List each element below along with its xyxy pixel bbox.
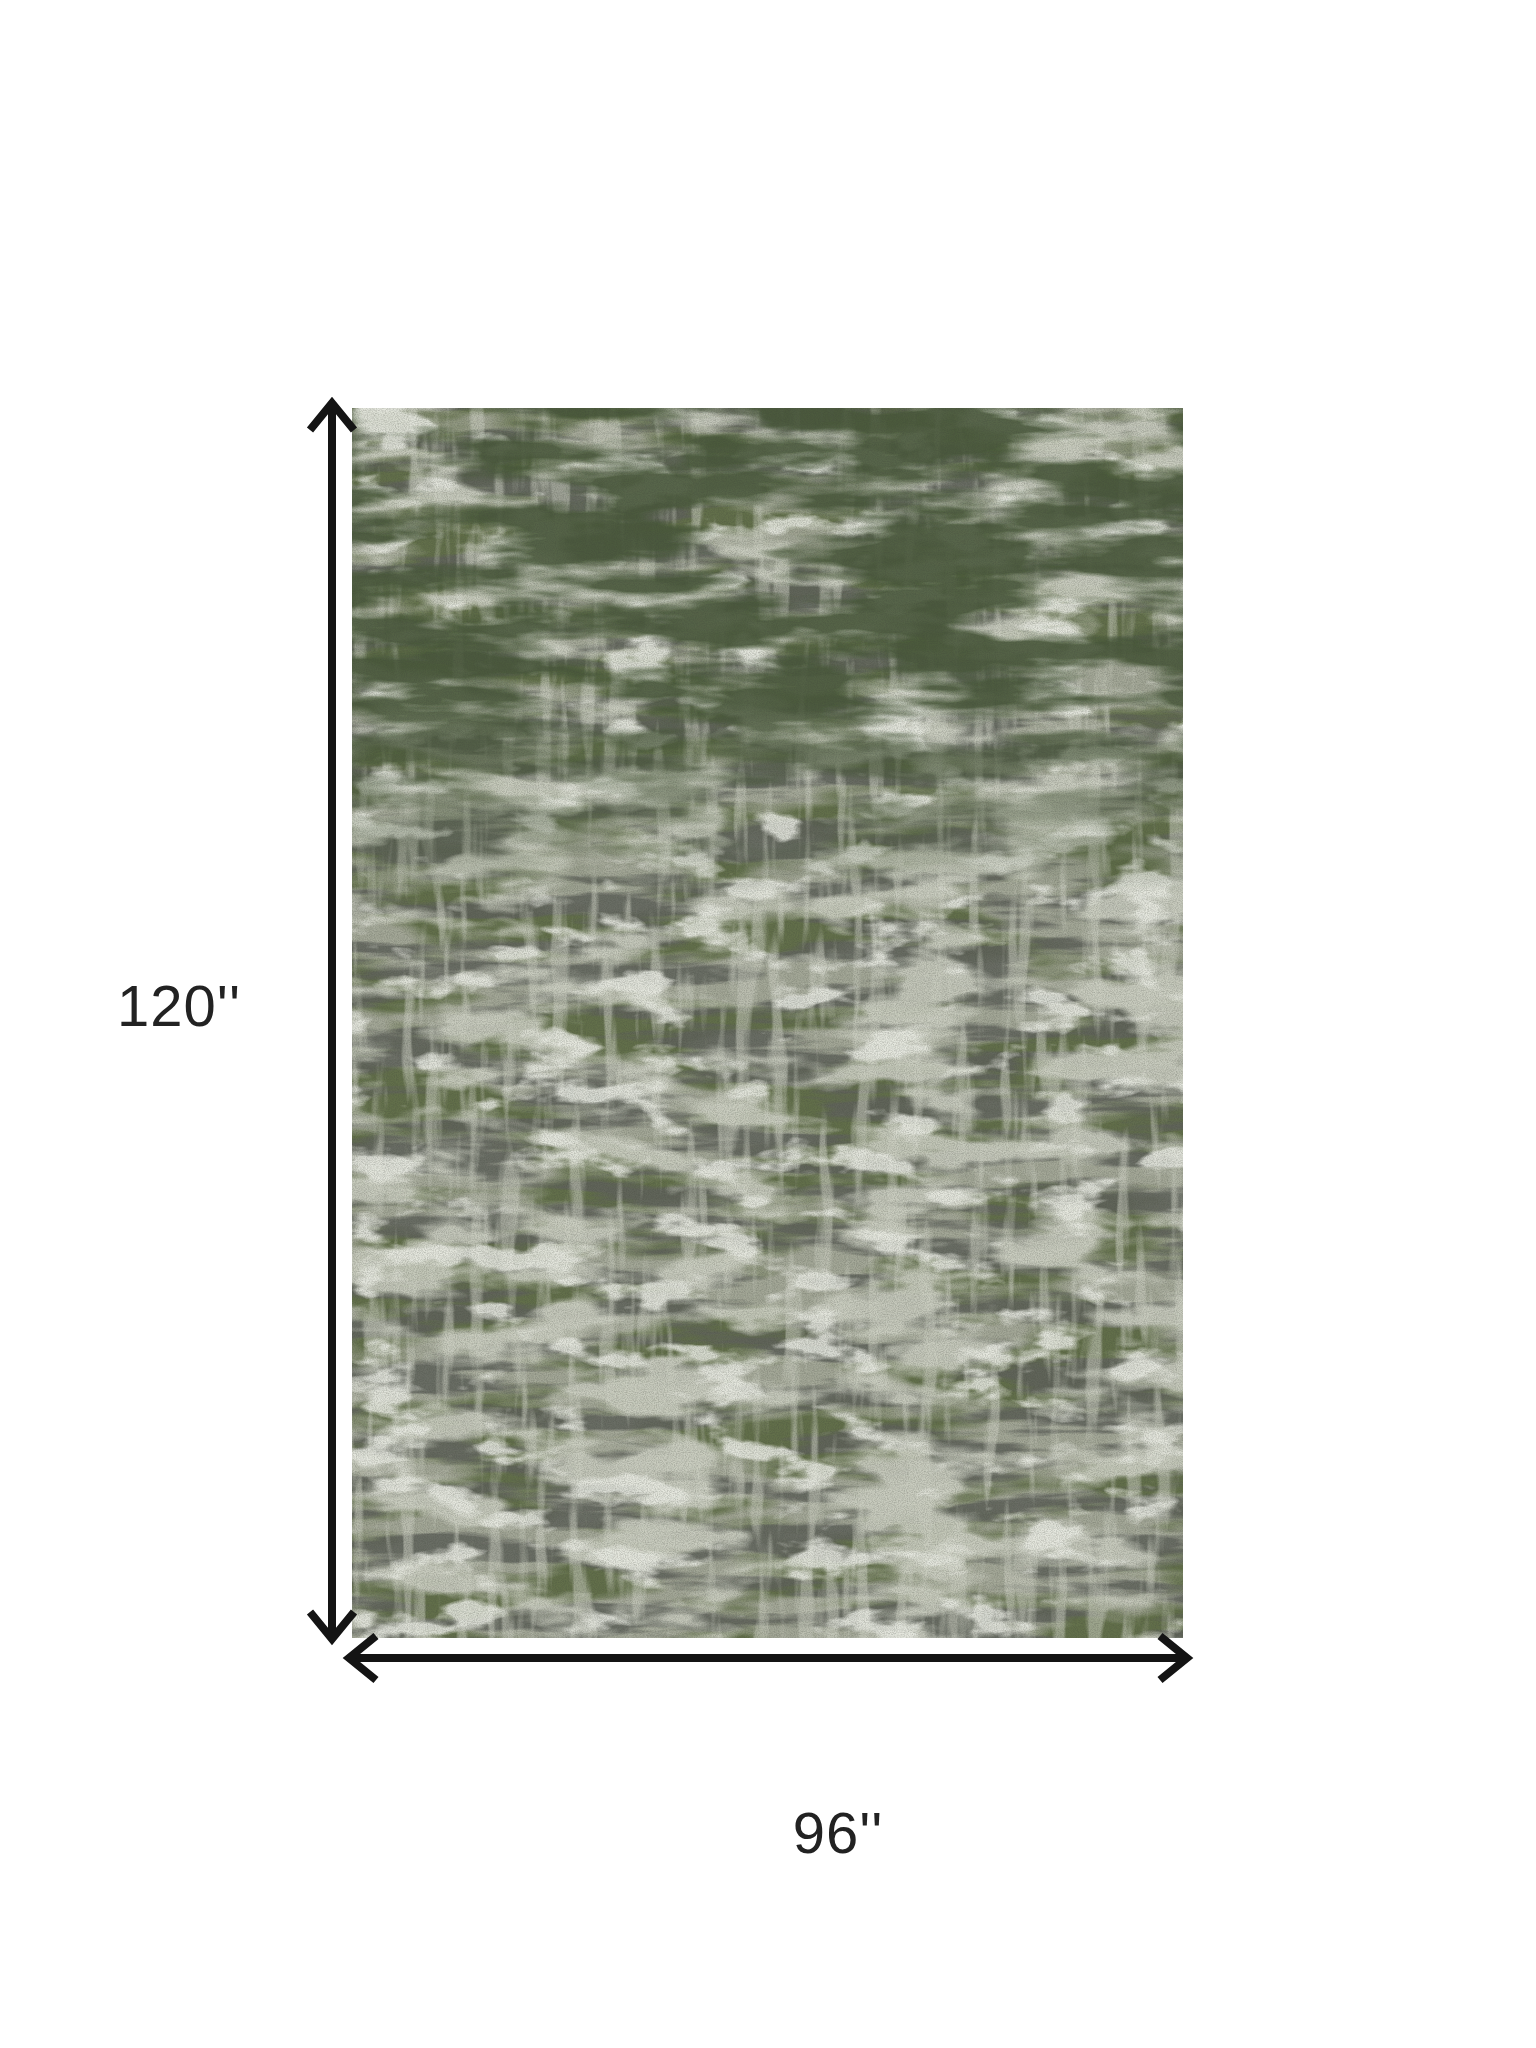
product-dimension-diagram: 120'' 96'' [0, 0, 1536, 2048]
height-dimension-arrow [300, 396, 364, 1646]
rug-texture [352, 408, 1183, 1638]
rug-swatch-image [352, 408, 1183, 1638]
height-dimension-label: 120'' [84, 977, 274, 1035]
rug-grain [352, 408, 1183, 1638]
width-dimension-label: 96'' [758, 1804, 918, 1862]
width-dimension-arrow [340, 1628, 1196, 1688]
